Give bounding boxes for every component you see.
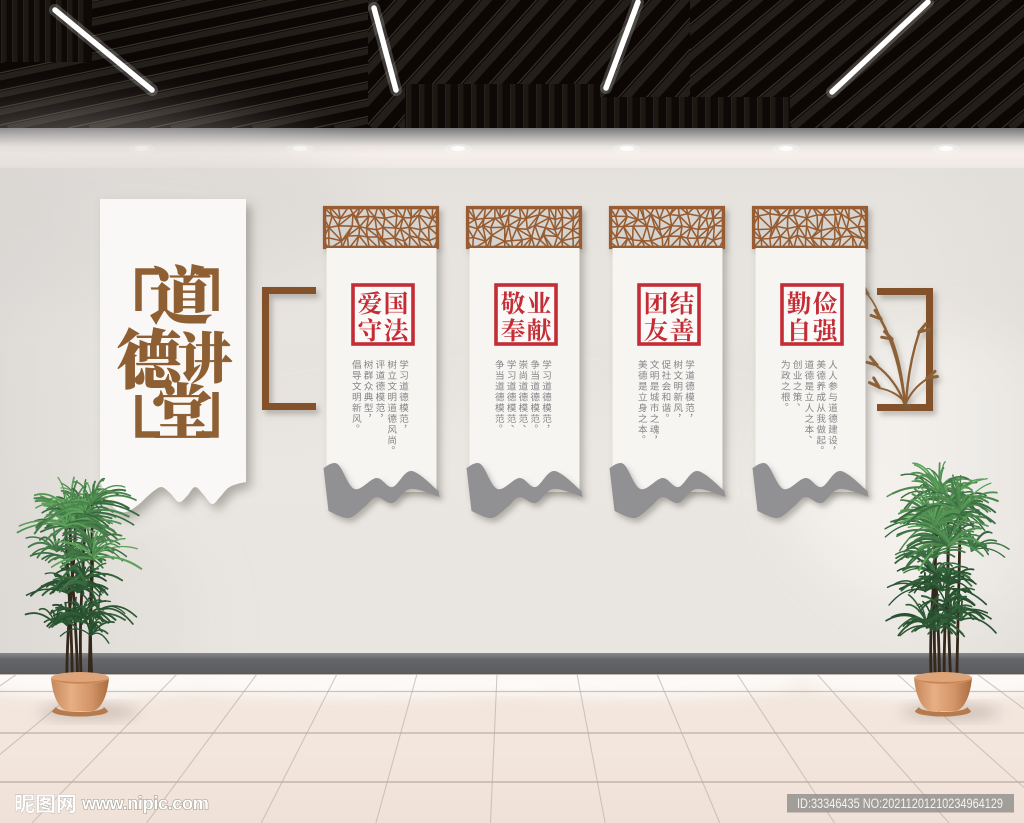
svg-text:ID:33346435 NO:202112012102349: ID:33346435 NO:20211201210234964129 [797, 796, 1003, 812]
svg-text:www.nipic.com: www.nipic.com [81, 794, 209, 814]
